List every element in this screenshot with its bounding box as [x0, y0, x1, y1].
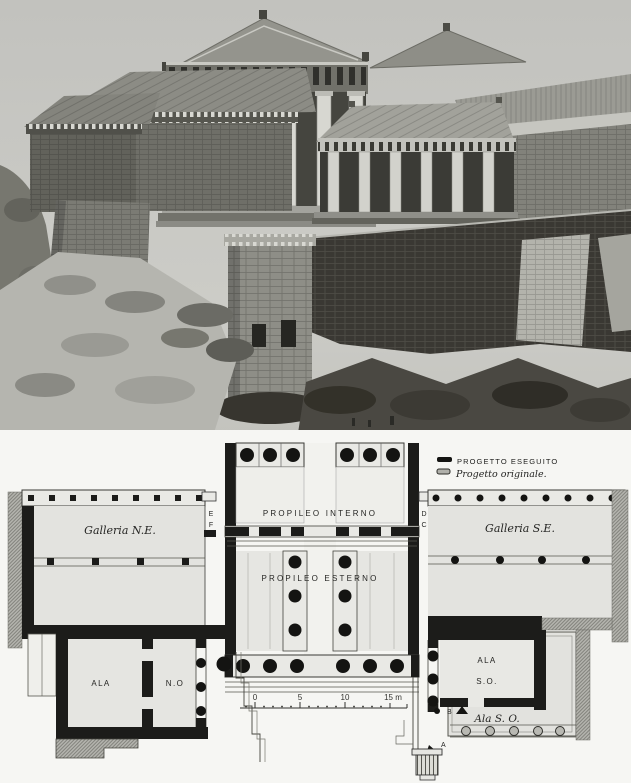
so-north-wall: [428, 630, 546, 640]
apex-acroterion: [259, 10, 267, 19]
no-partition-wall: [142, 634, 153, 727]
ala-so-label-1: ALA: [477, 656, 496, 665]
cross-wall-doorways: [225, 526, 419, 537]
corner-column: [217, 657, 232, 672]
ala-so: ALA S.O. B Ala S. O.: [428, 630, 591, 740]
so-original-hatch-band: [576, 630, 590, 740]
scale-10: 10: [341, 693, 350, 702]
scale-5: 5: [298, 693, 303, 702]
floor-plan: PROGETTO ESEGUITO Progetto originale. Ga…: [0, 438, 631, 783]
central-east-wall-north: [408, 443, 419, 658]
legend-original-swatch: [437, 469, 450, 474]
figure-propylaea: PROGETTO ESEGUITO Progetto originale. Ga…: [0, 0, 631, 783]
galleria-se: Galleria S.E.: [428, 490, 628, 642]
scale-15m: 15 m: [384, 693, 402, 702]
central-passage: [304, 443, 336, 658]
galleria-ne: Galleria N.E.: [8, 490, 240, 648]
marker-b: B: [447, 709, 452, 716]
ionic-colonnade-right: [333, 551, 357, 651]
south-wing: [312, 97, 520, 224]
galleria-ne-label: Galleria N.E.: [84, 524, 156, 537]
ionic-colonnade-left: [283, 551, 307, 651]
propileo-interno-label: PROPILEO INTERNO: [263, 509, 377, 518]
monument-pedestal: [412, 749, 442, 780]
marker-f: F: [209, 522, 213, 529]
tower-window: [252, 324, 266, 347]
se-original-hatch-band: [612, 490, 628, 642]
scale-0: 0: [253, 693, 258, 702]
ala-no-room-label: ALA: [91, 679, 110, 688]
ne-west-wall: [22, 506, 34, 639]
tower-window: [281, 320, 296, 347]
reconstruction-drawing: [0, 0, 631, 438]
galleria-se-label: Galleria S.E.: [485, 522, 555, 535]
legend-executed-swatch: [437, 457, 452, 462]
so-east-wall: [534, 630, 546, 710]
legend-original-label: Progetto originale.: [455, 469, 547, 480]
west-facade-colonnade: [225, 655, 419, 677]
so-south-wall: [440, 698, 534, 707]
ala-no-vestibule-label: N.O: [166, 679, 184, 688]
ala-so-label-2: S.O.: [476, 677, 498, 686]
marker-e: E: [209, 511, 214, 518]
legend-executed-label: PROGETTO ESEGUITO: [457, 457, 558, 466]
ne-original-hatch-band: [8, 492, 22, 648]
ala-so-original-label: Ala S. O.: [473, 713, 519, 725]
no-west-wall: [56, 625, 68, 739]
propileo-esterno-label: PROPILEO ESTERNO: [262, 574, 379, 583]
marker-a: A: [441, 742, 446, 749]
no-south-wall: [56, 727, 208, 739]
point-marker: [434, 708, 440, 714]
marker-c: C: [421, 522, 426, 529]
central-west-wall-north: [225, 443, 236, 658]
se-south-wall: [428, 616, 542, 630]
marker-d: D: [421, 511, 426, 518]
